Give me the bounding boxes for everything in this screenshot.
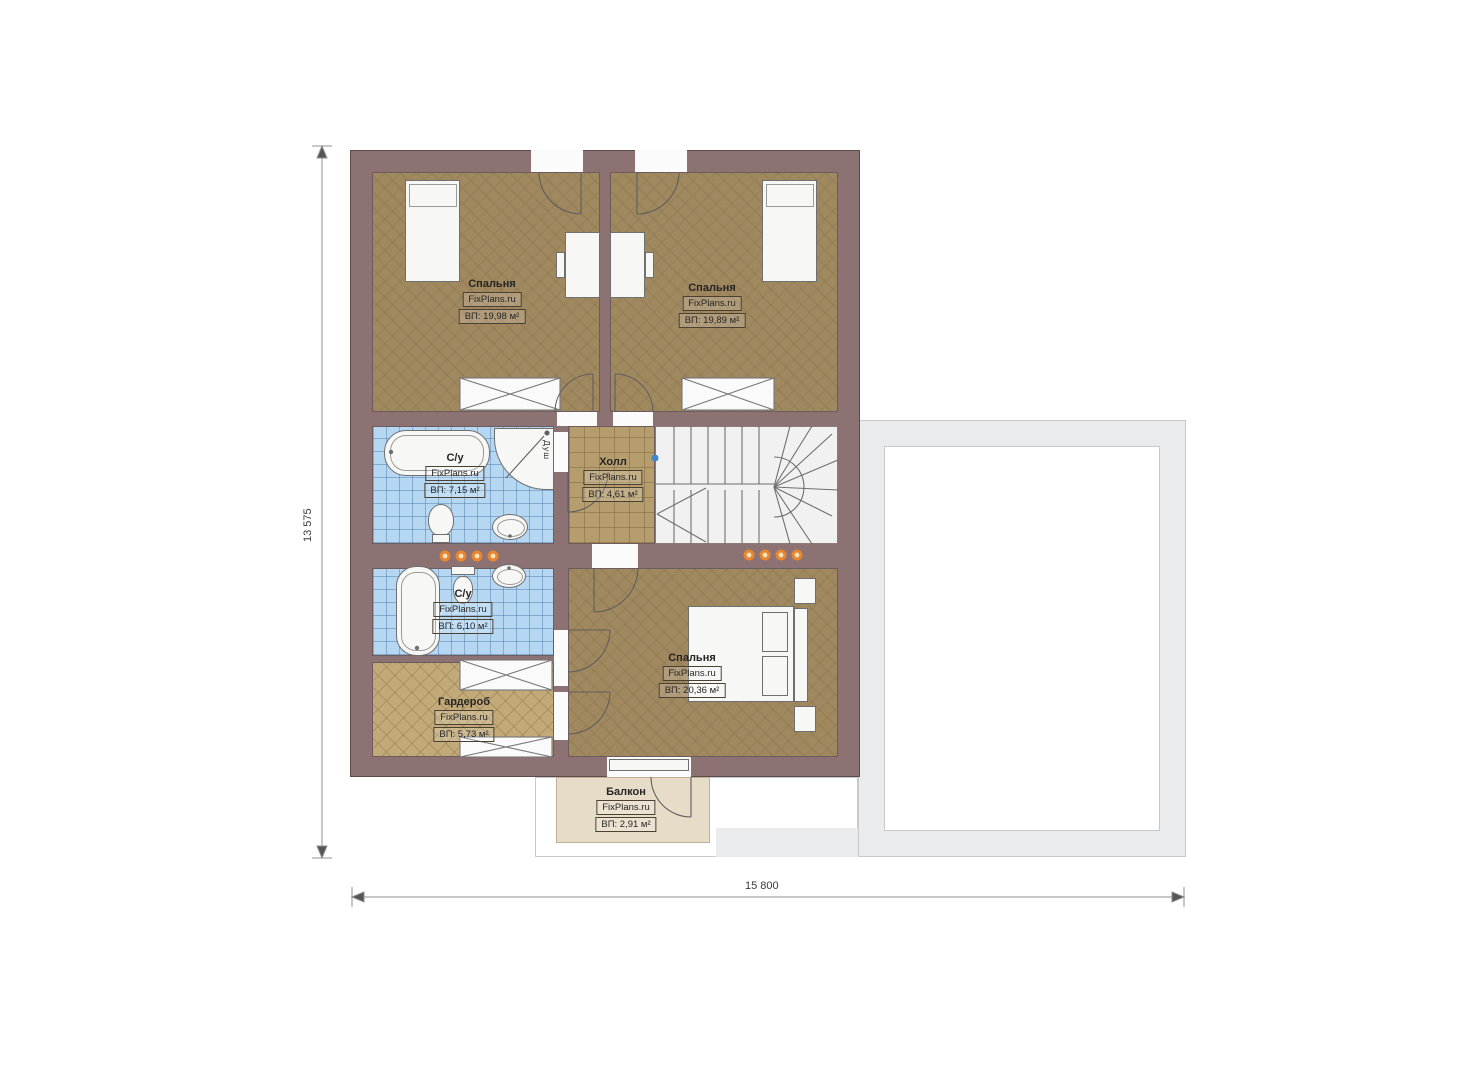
watermark-text: FixPlans.ru	[583, 470, 643, 485]
toilet-tank	[451, 566, 475, 575]
toilet-tank	[432, 534, 450, 543]
pillow	[409, 184, 457, 207]
chair	[645, 252, 654, 278]
room-name: Спальня	[659, 652, 726, 664]
watermark-text: FixPlans.ru	[434, 710, 494, 725]
door-opening	[635, 150, 687, 172]
room-label-bedroom-2: Спальня FixPlans.ru ВП: 19,89 м²	[679, 282, 746, 328]
roof-outline	[858, 420, 1186, 857]
room-name: Спальня	[679, 282, 746, 294]
room-name: Балкон	[595, 786, 656, 798]
door-opening	[554, 432, 568, 472]
dimension-width-label: 15 800	[745, 880, 779, 892]
room-name: С/у	[424, 452, 485, 464]
room-area: ВП: 5,73 м²	[433, 727, 494, 742]
room-name: Спальня	[459, 278, 526, 290]
pillow	[766, 184, 814, 207]
watermark-text: FixPlans.ru	[425, 466, 485, 481]
door-opening	[613, 412, 653, 426]
room-area: ВП: 7,15 м²	[424, 483, 485, 498]
toilet	[428, 504, 454, 536]
pillow	[762, 612, 788, 652]
desk	[565, 232, 600, 298]
room-name: С/у	[432, 588, 493, 600]
dimension-height-label: 13 575	[302, 508, 314, 542]
watermark-text: FixPlans.ru	[596, 800, 656, 815]
shower-label: Душ	[542, 440, 552, 460]
room-label-bathroom-1: С/у FixPlans.ru ВП: 7,15 м²	[424, 452, 485, 498]
door-opening	[554, 692, 568, 740]
nightstand	[794, 578, 816, 604]
room-area: ВП: 4,61 м²	[582, 487, 643, 502]
washbasin	[492, 564, 526, 588]
pillow	[762, 656, 788, 696]
nightstand	[794, 706, 816, 732]
washbasin-inner	[497, 519, 525, 537]
door-opening	[592, 544, 638, 568]
washbasin	[492, 514, 528, 540]
staircase-floor	[655, 426, 838, 544]
room-label-hall: Холл FixPlans.ru ВП: 4,61 м²	[582, 456, 643, 502]
desk	[610, 232, 645, 298]
room-area: ВП: 2,91 м²	[595, 817, 656, 832]
room-area: ВП: 6,10 м²	[432, 619, 493, 634]
room-label-balcony: Балкон FixPlans.ru ВП: 2,91 м²	[595, 786, 656, 832]
watermark-text: FixPlans.ru	[462, 292, 522, 307]
balcony-door-panel	[609, 759, 689, 771]
room-name: Холл	[582, 456, 643, 468]
room-area: ВП: 20,36 м²	[659, 683, 726, 698]
washbasin-inner	[497, 569, 523, 585]
door-opening	[554, 630, 568, 686]
watermark-text: FixPlans.ru	[662, 666, 722, 681]
door-opening	[531, 150, 583, 172]
floor-plan: Душ	[0, 0, 1474, 1080]
door-opening	[557, 412, 597, 426]
watermark-text: FixPlans.ru	[682, 296, 742, 311]
roof-outline-inner	[884, 446, 1160, 831]
room-area: ВП: 19,89 м²	[679, 313, 746, 328]
room-label-bathroom-2: С/у FixPlans.ru ВП: 6,10 м²	[432, 588, 493, 634]
headboard	[794, 608, 808, 702]
room-area: ВП: 19,98 м²	[459, 309, 526, 324]
room-label-wardrobe: Гардероб FixPlans.ru ВП: 5,73 м²	[433, 696, 494, 742]
room-label-bedroom-3: Спальня FixPlans.ru ВП: 20,36 м²	[659, 652, 726, 698]
bed	[405, 180, 460, 282]
bed	[762, 180, 817, 282]
chair	[556, 252, 565, 278]
room-label-bedroom-1: Спальня FixPlans.ru ВП: 19,98 м²	[459, 278, 526, 324]
watermark-text: FixPlans.ru	[433, 602, 493, 617]
bathtub-inner	[401, 572, 436, 651]
roof-strip	[716, 828, 858, 857]
room-name: Гардероб	[433, 696, 494, 708]
